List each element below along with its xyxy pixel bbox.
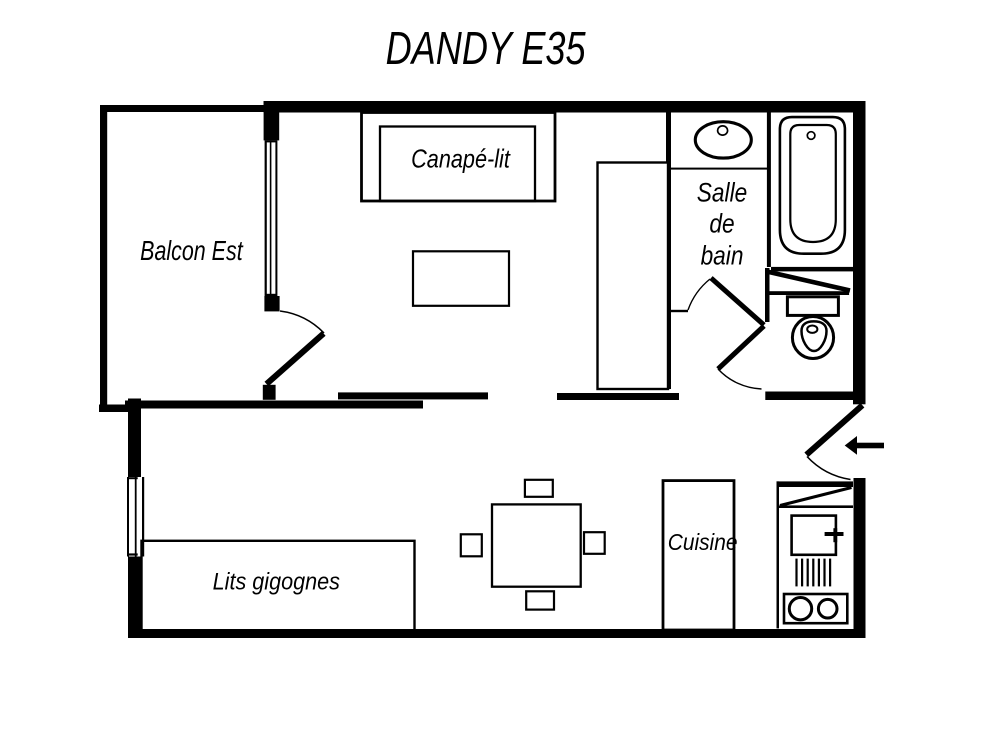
svg-text:Canapé-lit: Canapé-lit: [411, 146, 511, 174]
svg-text:Salle: Salle: [697, 178, 747, 208]
svg-text:bain: bain: [701, 241, 744, 271]
svg-text:Cuisine: Cuisine: [668, 529, 738, 555]
svg-text:Lits gigognes: Lits gigognes: [213, 568, 340, 595]
svg-text:Balcon Est: Balcon Est: [140, 236, 244, 266]
svg-text:de: de: [709, 209, 734, 239]
svg-text:DANDY E35: DANDY E35: [386, 23, 587, 74]
